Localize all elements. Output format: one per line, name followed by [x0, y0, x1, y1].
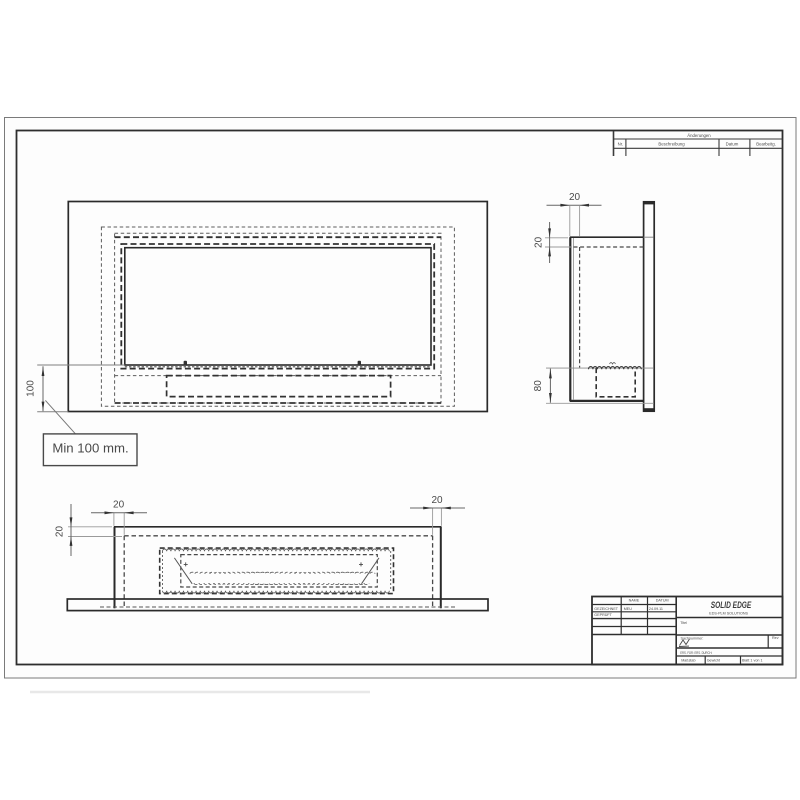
- svg-text:MEU: MEU: [624, 607, 633, 611]
- svg-text:Min 100 mm.: Min 100 mm.: [52, 441, 128, 456]
- svg-text:GEPRÜFT: GEPRÜFT: [594, 613, 612, 617]
- svg-text:Titel: Titel: [680, 621, 687, 625]
- svg-text:DATUM: DATUM: [656, 599, 669, 603]
- svg-text:20: 20: [113, 500, 125, 511]
- svg-text:Gewicht: Gewicht: [707, 658, 720, 662]
- svg-text:100: 100: [26, 380, 37, 397]
- svg-text:GEZEICHNET: GEZEICHNET: [594, 607, 619, 611]
- svg-text:Datum: Datum: [726, 141, 739, 146]
- svg-text:Maßstab: Maßstab: [681, 658, 695, 662]
- svg-text:20: 20: [569, 192, 581, 203]
- svg-text:EDS-PLM SOLUTIONS: EDS-PLM SOLUTIONS: [709, 612, 748, 616]
- svg-text:NAME: NAME: [629, 599, 640, 603]
- svg-text:Änderungen: Änderungen: [687, 133, 711, 138]
- svg-text:Rev: Rev: [772, 636, 779, 640]
- svg-text:Beschreibung: Beschreibung: [658, 141, 685, 146]
- svg-text:80: 80: [533, 380, 544, 392]
- svg-text:20: 20: [534, 236, 545, 248]
- svg-text:Bearbeitg.: Bearbeitg.: [756, 141, 776, 146]
- svg-text:20: 20: [431, 495, 443, 506]
- svg-text:ERS. FÜR: ERS. DURCH:: ERS. FÜR: ERS. DURCH:: [680, 651, 712, 655]
- svg-text:Nr.: Nr.: [618, 141, 624, 146]
- svg-text:20: 20: [55, 526, 66, 538]
- svg-text:Sachnummer:: Sachnummer:: [681, 637, 704, 641]
- svg-text:Blatt 1 von 1: Blatt 1 von 1: [742, 658, 763, 662]
- svg-text:SOLID EDGE: SOLID EDGE: [711, 599, 752, 610]
- svg-text:24.09.11: 24.09.11: [649, 607, 663, 611]
